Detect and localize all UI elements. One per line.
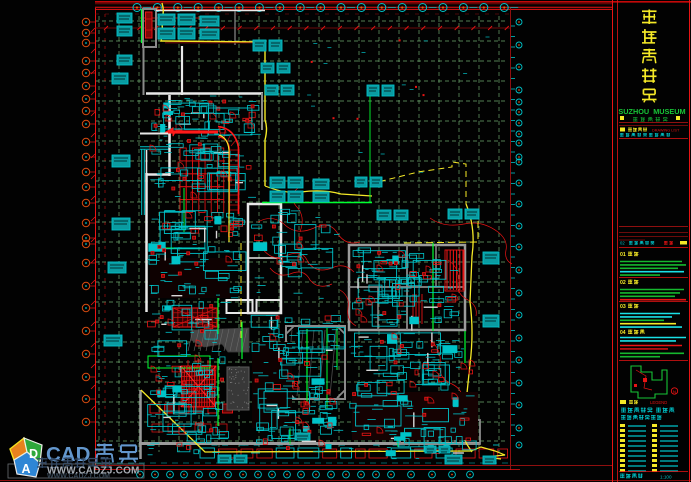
svg-text:SUZHOU MUSEUM: SUZHOU MUSEUM	[618, 107, 685, 116]
svg-text:1:100: 1:100	[660, 475, 672, 480]
svg-text:DRAWING LIST: DRAWING LIST	[652, 129, 680, 133]
svg-text:A: A	[21, 462, 30, 476]
svg-text:04: 04	[620, 330, 626, 336]
svg-text:D: D	[29, 447, 38, 461]
svg-text:N: N	[673, 389, 676, 394]
svg-text:WWW.CADZJ.COM: WWW.CADZJ.COM	[47, 466, 140, 477]
svg-text:01: 01	[620, 252, 626, 258]
svg-text:LEGEND: LEGEND	[650, 400, 667, 405]
svg-text:02: 02	[620, 241, 625, 246]
svg-text:03: 03	[620, 304, 626, 310]
svg-text:02: 02	[620, 280, 626, 286]
